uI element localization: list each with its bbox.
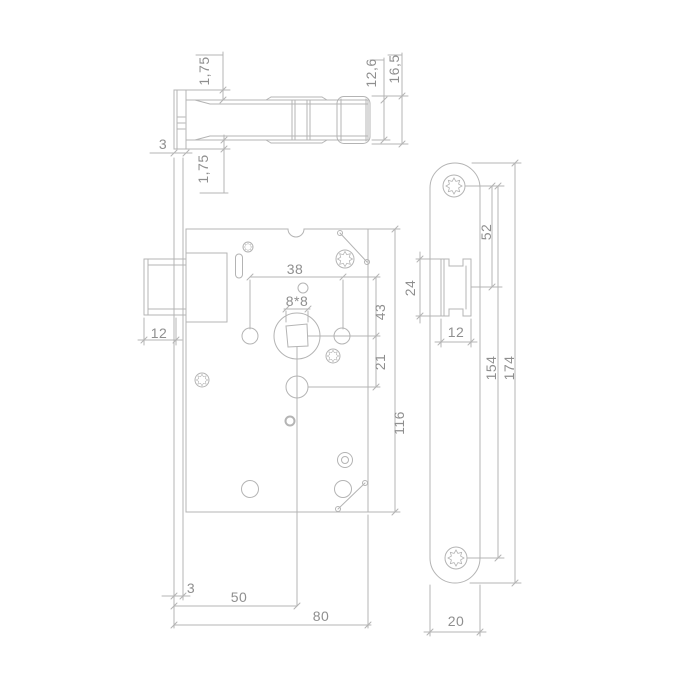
- latch-bolt-faceplate: [441, 259, 471, 316]
- dim-screw-hole-spacing: 154: [484, 356, 498, 381]
- dim-faceplate-thickness-top: 3: [159, 137, 167, 151]
- fixing-hole-bottom-right: [335, 481, 352, 498]
- dim-faceplate-lip-top: 1,75: [197, 56, 211, 85]
- ring-hole: [338, 453, 353, 468]
- screw-hole-bottom: [445, 547, 467, 569]
- screw-head: [243, 242, 253, 252]
- dim-case-height: 116: [392, 411, 406, 435]
- faceplate-view: [416, 160, 521, 636]
- fixing-hole-bottom-left: [242, 481, 259, 498]
- dim-cylinder-offset: 21: [373, 354, 387, 371]
- dim-backset: 50: [231, 590, 248, 604]
- faceplate-dimension-lines: [416, 160, 521, 636]
- case-holes: [195, 242, 354, 498]
- latch-housing: [186, 253, 227, 322]
- dim-case-depth-front: 80: [313, 609, 330, 623]
- faceplate-edge: [174, 90, 186, 149]
- front-view-dimension-lines: [138, 226, 400, 628]
- dim-latch-height: 24: [403, 280, 417, 297]
- dim-overall-depth: 16,5: [387, 54, 401, 83]
- fixing-hole-left: [242, 328, 258, 344]
- screw-hole-top: [443, 175, 465, 197]
- dim-follower-offset: 43: [373, 304, 387, 321]
- dim-faceplate-lip-bottom: 1,75: [196, 154, 210, 183]
- lock-case-outline: [186, 229, 368, 512]
- dim-faceplate-length: 174: [502, 356, 516, 381]
- screw-head: [326, 349, 340, 363]
- dim-latch-protrusion: 12: [151, 326, 168, 340]
- screw-head: [195, 373, 209, 387]
- dim-faceplate-width: 20: [448, 614, 465, 628]
- small-pin-hole: [286, 417, 295, 426]
- pin-hole: [298, 283, 308, 293]
- spindle-square-hole: [286, 324, 308, 347]
- screw-head: [336, 250, 354, 268]
- front-view: [138, 158, 400, 628]
- dim-screw-to-latch: 52: [479, 224, 493, 241]
- dim-spindle-square: 8*8: [286, 294, 309, 308]
- spring-bottom-right: [336, 481, 368, 512]
- lock-technical-drawing: 1,75 12,6 16,5 3 1,75 12 38 8*8 43 21 11…: [0, 0, 700, 700]
- dim-latch-width: 12: [448, 325, 465, 339]
- slot-hole: [236, 254, 243, 278]
- latch-bolt-front: [144, 259, 186, 315]
- dim-follower-hole-spacing: 38: [287, 262, 304, 276]
- faceplate-strip: [174, 158, 183, 582]
- dim-case-depth-top-view: 12,6: [364, 58, 378, 87]
- dim-faceplate-thickness-bottom: 3: [187, 581, 195, 595]
- drawing-geometry: [0, 0, 700, 700]
- faceplate-outline: [430, 163, 480, 583]
